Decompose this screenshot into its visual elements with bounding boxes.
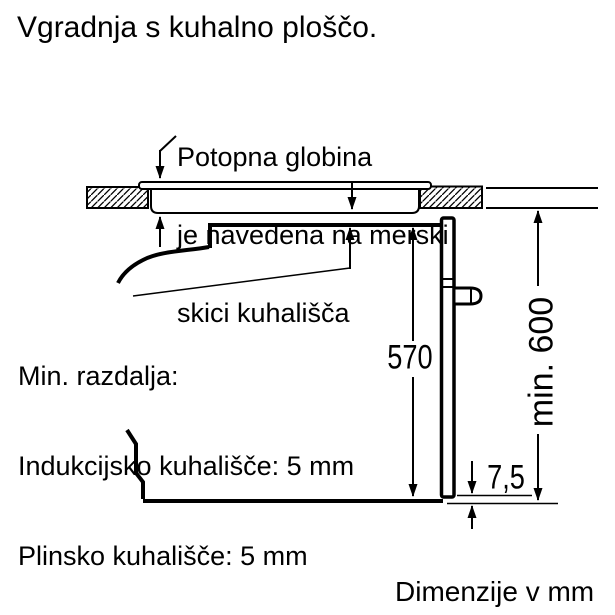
min-distance-induction: Indukcijsko kuhališče: 5 mm bbox=[18, 451, 354, 481]
min-distance-heading: Min. razdalja: bbox=[18, 361, 354, 391]
dimension-label-min600: min. 600 bbox=[523, 297, 562, 427]
min-distance-note: Min. razdalja: Indukcijsko kuhališče: 5 … bbox=[18, 301, 354, 615]
manual-page: Vgradnja s kuhalno ploščo. Potopna globi… bbox=[0, 0, 615, 615]
worktop-left-hatch bbox=[87, 187, 148, 208]
hob-depth-note-line1: Potopna globina bbox=[177, 144, 449, 170]
dimension-label-75: 7,5 bbox=[487, 459, 525, 498]
dimension-label-570: 570 bbox=[387, 339, 432, 378]
page-title: Vgradnja s kuhalno ploščo. bbox=[17, 11, 377, 45]
units-note: Dimenzije v mm bbox=[395, 576, 594, 608]
hob-depth-note-line2: je navedena na merski bbox=[177, 222, 449, 248]
door-handle bbox=[454, 288, 481, 304]
min-distance-gas: Plinsko kuhališče: 5 mm bbox=[18, 541, 354, 571]
hob-surface-leader-arrow bbox=[160, 136, 176, 178]
worktop-continuation-lines bbox=[486, 188, 598, 208]
